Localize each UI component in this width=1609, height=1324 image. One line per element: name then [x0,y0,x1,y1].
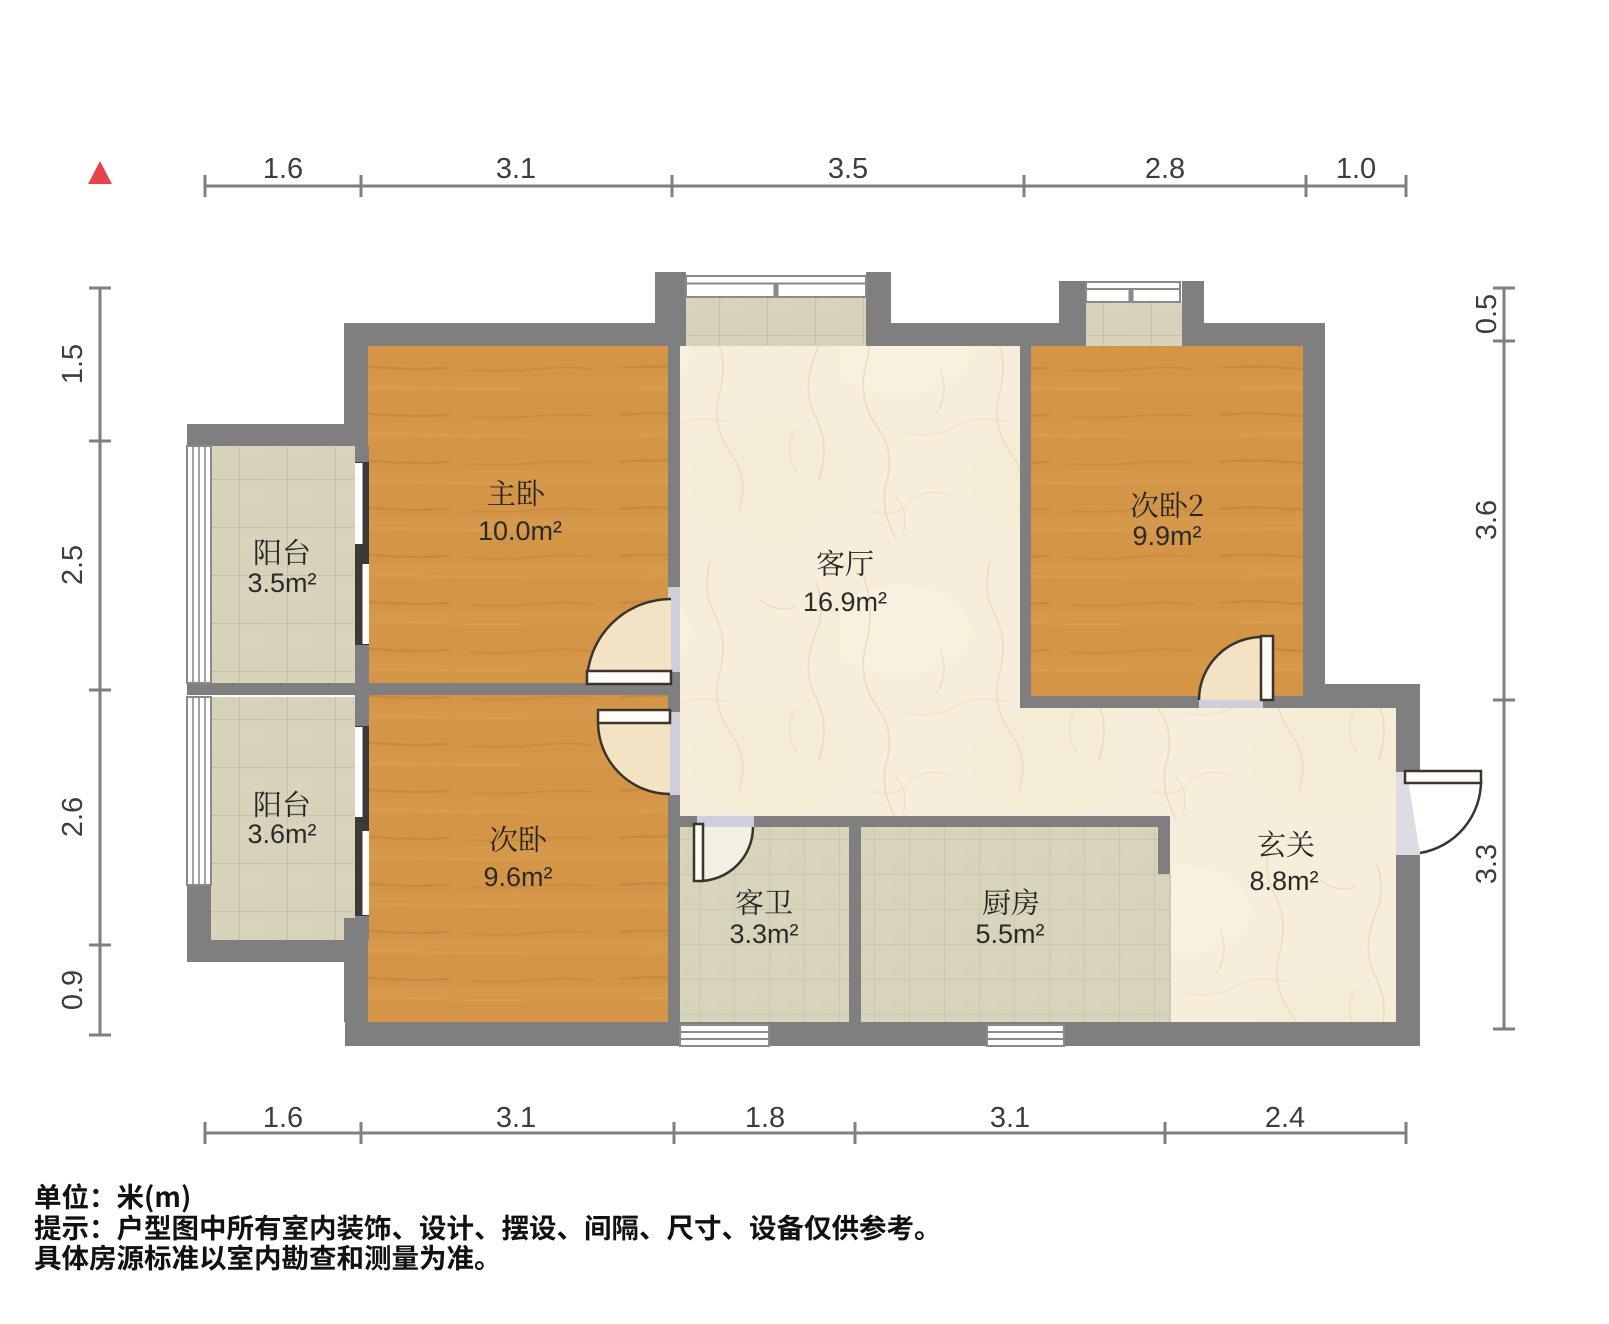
svg-text:1.0: 1.0 [1336,153,1376,185]
svg-text:2.8: 2.8 [1145,153,1185,185]
svg-text:1.6: 1.6 [263,1102,303,1134]
svg-text:2.6: 2.6 [57,797,89,837]
svg-text:2.5: 2.5 [57,545,89,585]
svg-text:9.9m²: 9.9m² [1132,521,1201,551]
svg-text:3.6m²: 3.6m² [247,819,316,849]
svg-text:1.6: 1.6 [263,153,303,185]
svg-text:1.8: 1.8 [745,1102,785,1134]
svg-text:16.9m²: 16.9m² [803,587,887,617]
svg-text:3.1: 3.1 [496,153,536,185]
svg-text:3.5m²: 3.5m² [247,568,316,598]
svg-text:0.9: 0.9 [57,970,89,1010]
svg-text:0.5: 0.5 [1471,294,1503,334]
svg-text:5.5m²: 5.5m² [975,919,1044,949]
svg-text:3.1: 3.1 [496,1102,536,1134]
svg-text:3.5: 3.5 [828,153,868,185]
svg-text:3.6: 3.6 [1471,500,1503,540]
svg-text:9.6m²: 9.6m² [483,862,552,892]
svg-text:8.8m²: 8.8m² [1249,866,1318,896]
svg-text:10.0m²: 10.0m² [478,516,562,546]
svg-text:3.3: 3.3 [1471,844,1503,884]
svg-text:3.3m²: 3.3m² [729,919,798,949]
svg-text:1.5: 1.5 [57,344,89,384]
svg-text:2.4: 2.4 [1265,1102,1305,1134]
svg-text:3.1: 3.1 [990,1102,1030,1134]
